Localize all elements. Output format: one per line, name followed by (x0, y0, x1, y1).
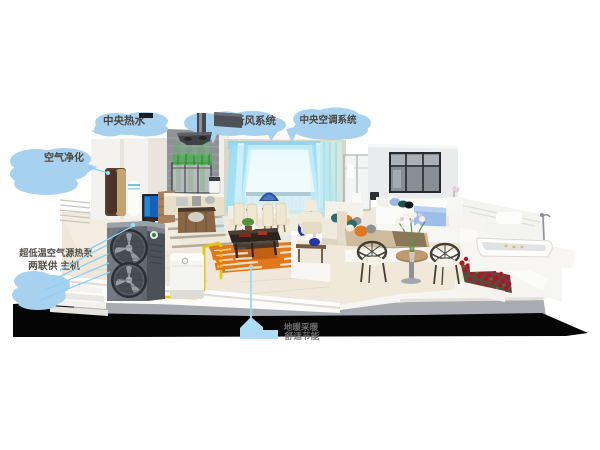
svg-text:超低温空气源热泵: 超低温空气源热泵 (18, 247, 93, 258)
svg-text:舒适节能: 舒适节能 (285, 330, 320, 341)
svg-text:空气净化: 空气净化 (44, 151, 84, 164)
svg-text:中央空调系统: 中央空调系统 (299, 114, 357, 126)
